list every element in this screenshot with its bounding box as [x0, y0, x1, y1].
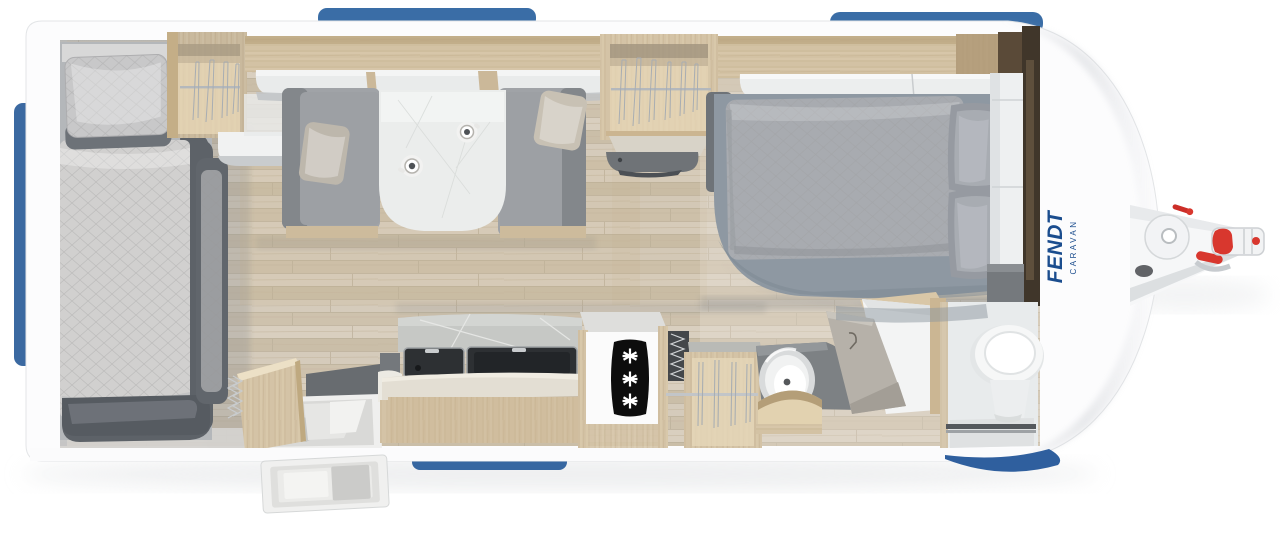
svg-text:CARAVAN: CARAVAN: [1069, 220, 1078, 275]
svg-text:FENDT: FENDT: [1044, 209, 1067, 283]
